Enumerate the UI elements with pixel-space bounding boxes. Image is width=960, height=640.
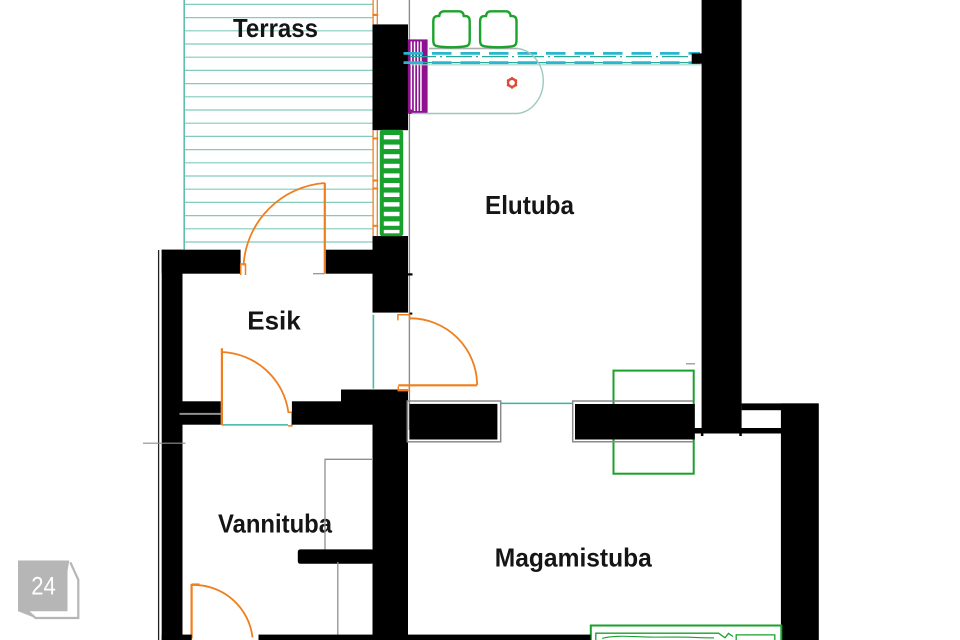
svg-text:Magamistuba: Magamistuba <box>495 543 652 573</box>
svg-text:Elutuba: Elutuba <box>485 190 574 220</box>
svg-text:Esik: Esik <box>247 306 301 336</box>
svg-text:Vannituba: Vannituba <box>218 509 332 539</box>
svg-text:24: 24 <box>31 573 56 601</box>
svg-text:Terrass: Terrass <box>233 13 318 43</box>
